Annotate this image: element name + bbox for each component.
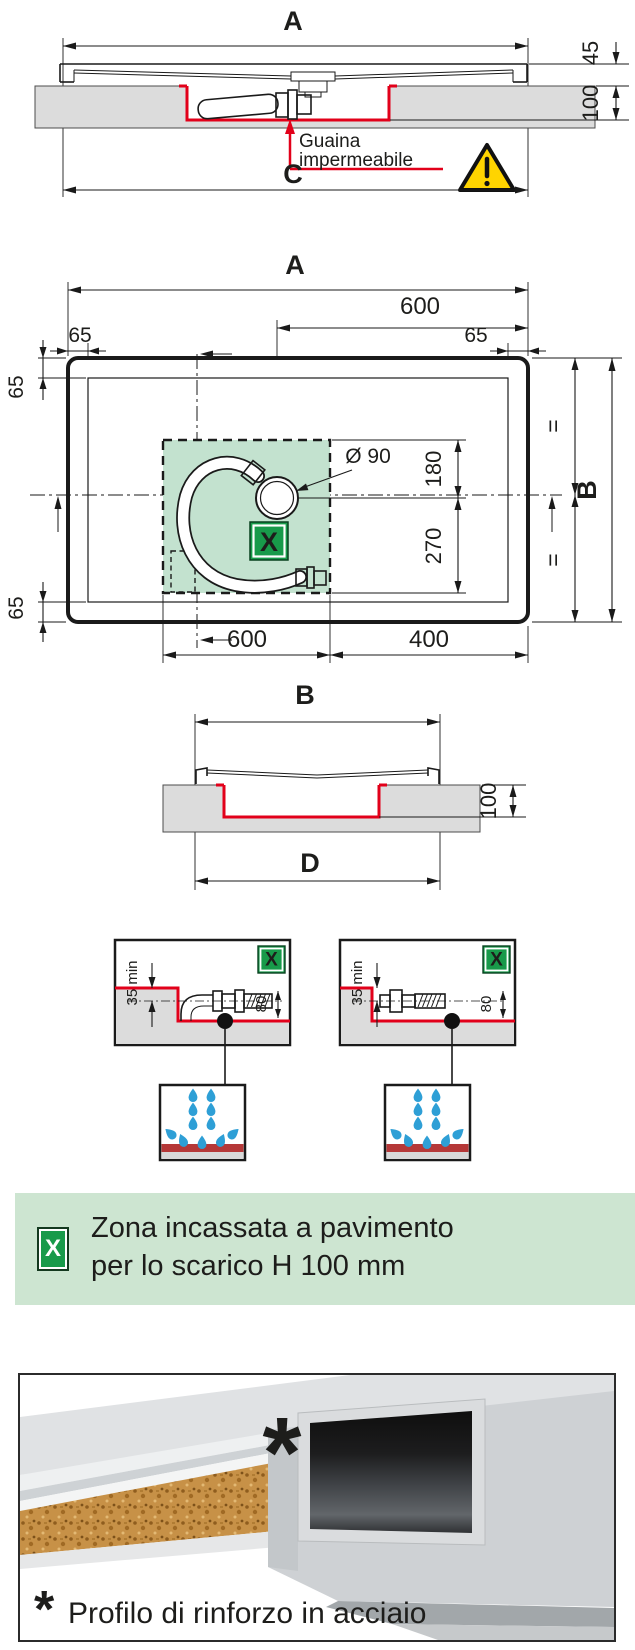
shower-tray-profile — [196, 768, 439, 784]
dim-label-65-side: 65 — [5, 596, 28, 619]
zone-marker-label: X — [45, 1235, 61, 1263]
caption-asterisk: * — [34, 1581, 55, 1639]
membrane-label-line2: impermeabile — [299, 150, 413, 171]
water-drain-box — [160, 1085, 245, 1160]
dim-45: 45 — [529, 41, 629, 65]
connector-dot — [444, 1013, 460, 1029]
dim-label-65-side: 65 — [5, 375, 28, 398]
page: A 45 — [0, 0, 635, 1650]
dim-label-45: 45 — [578, 41, 603, 65]
dim-label-100: 100 — [578, 85, 603, 122]
dim-label-a: A — [283, 6, 303, 36]
drain-detail-views: 35 min 80 X — [0, 915, 635, 1175]
dim-label-80: 80 — [253, 996, 270, 1013]
dim-label-600-bottom: 600 — [227, 626, 267, 653]
dim-label-35min: 35 min — [349, 960, 366, 1005]
reinforcement-photo-panel: * * Profilo di rinforzo in acciaio — [18, 1373, 616, 1642]
dim-d: D — [195, 848, 440, 885]
zone-x-badge: X — [483, 946, 510, 973]
zone-x-badge: X — [250, 522, 288, 560]
floor-slab — [163, 783, 480, 832]
zone-x-badge: X — [37, 1227, 69, 1271]
dim-label-180: 180 — [421, 451, 446, 488]
drain-hole — [256, 477, 298, 519]
drain-diameter-label: Ø 90 — [345, 445, 391, 468]
dim-label-80: 80 — [478, 996, 495, 1013]
legend-banner: X Zona incassata a pavimento per lo scar… — [15, 1193, 635, 1305]
connector-dot — [217, 1013, 233, 1029]
dim-label-b: B — [572, 480, 602, 500]
dim-label-600-top: 600 — [400, 293, 440, 320]
detail-left: 35 min 80 X — [115, 940, 290, 1160]
dim-label-65: 65 — [464, 324, 487, 347]
dim-label-b: B — [295, 680, 315, 710]
dim-b-right: = = B — [532, 358, 622, 622]
equal-mark-top: = — [540, 419, 566, 432]
dim-a-plan: A — [68, 250, 528, 356]
dim-label-270: 270 — [421, 528, 446, 565]
water-drain-box — [385, 1085, 470, 1160]
equal-mark-bottom: = — [540, 553, 566, 566]
reinforcement-photo: * * Profilo di rinforzo in acciaio — [20, 1375, 614, 1640]
dim-label-c: C — [283, 159, 303, 189]
legend-line1: Zona incassata a pavimento — [91, 1209, 454, 1247]
long-side-cross-section: A 45 — [0, 0, 635, 240]
warning-icon — [460, 145, 514, 190]
legend-text: Zona incassata a pavimento per lo scaric… — [91, 1209, 454, 1285]
detail-right: 35 min 80 X — [340, 940, 515, 1160]
zone-marker-label: X — [490, 950, 503, 971]
dim-c: C — [63, 159, 528, 194]
plan-view: A 600 65 65 — [0, 250, 635, 680]
zone-marker-label: X — [260, 527, 278, 557]
short-side-cross-section: B 100 D — [0, 680, 635, 915]
dim-label-a: A — [285, 250, 305, 280]
steel-profile-opening — [310, 1411, 472, 1533]
dim-label-35min: 35 min — [124, 960, 141, 1005]
dim-label-d: D — [300, 848, 320, 878]
zone-x-badge: X — [258, 946, 285, 973]
dim-label-400: 400 — [409, 626, 449, 653]
caption-text: Profilo di rinforzo in acciaio — [68, 1597, 427, 1630]
legend-line2: per lo scarico H 100 mm — [91, 1247, 454, 1285]
zone-marker-label: X — [265, 950, 278, 971]
asterisk-marker: * — [263, 1397, 302, 1509]
dim-label-100: 100 — [476, 783, 501, 820]
membrane-label-line1: Guaina — [299, 131, 361, 152]
